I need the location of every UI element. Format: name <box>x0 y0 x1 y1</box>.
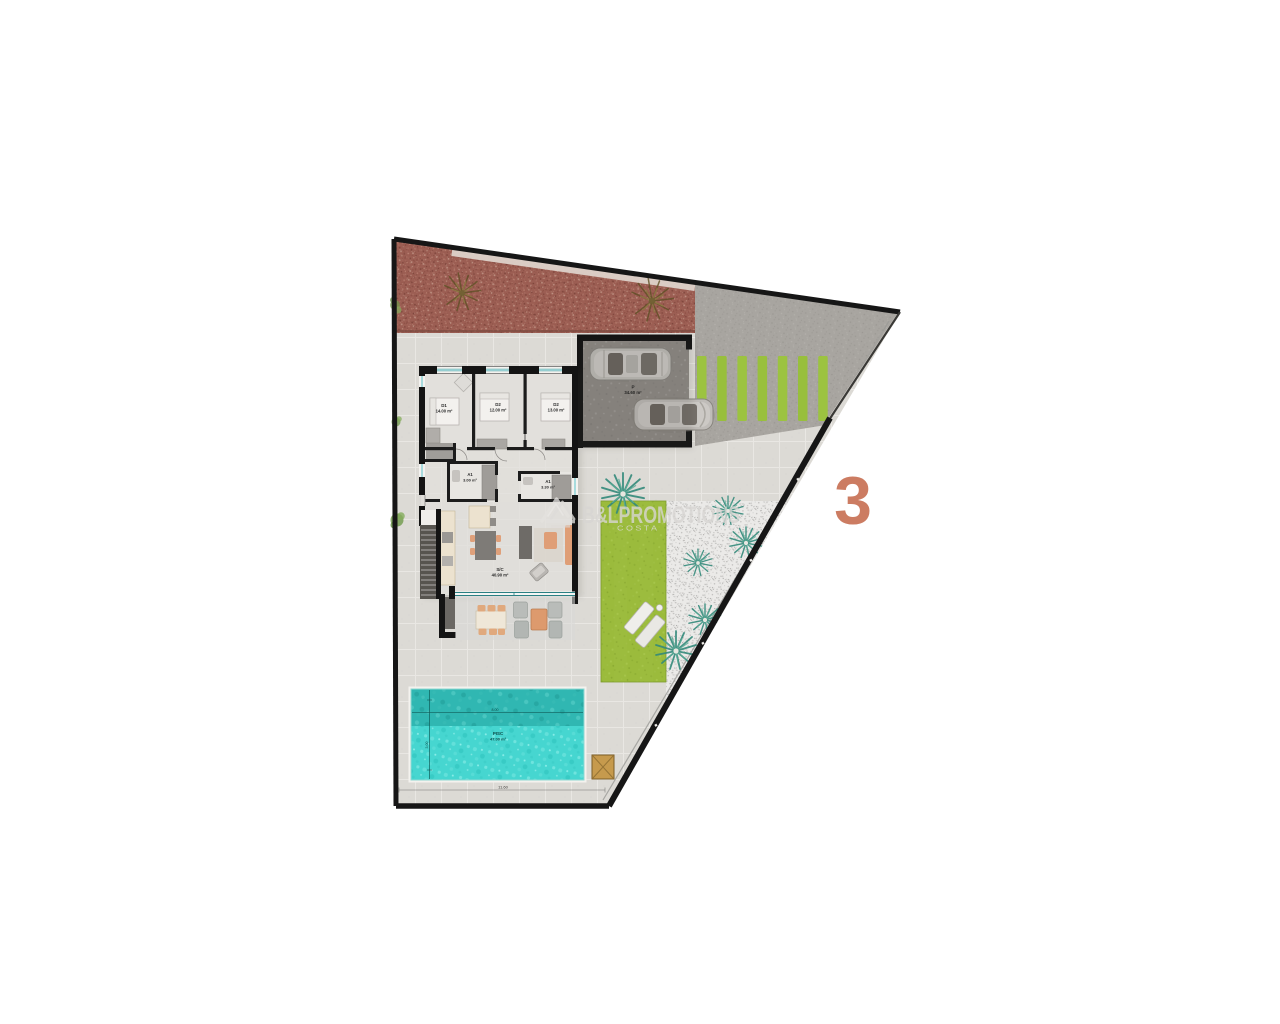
svg-text:47.00 m²: 47.00 m² <box>490 737 507 742</box>
svg-text:12.00 m²: 12.00 m² <box>490 408 507 413</box>
svg-text:A1: A1 <box>467 472 473 477</box>
svg-text:3: 3 <box>834 463 872 539</box>
svg-text:D1: D1 <box>441 403 447 408</box>
svg-text:11.60: 11.60 <box>498 785 508 790</box>
svg-text:C O S T A: C O S T A <box>617 526 657 533</box>
svg-text:40.90 m²: 40.90 m² <box>492 573 509 578</box>
svg-text:3.30 m²: 3.30 m² <box>541 485 555 490</box>
svg-text:S/C: S/C <box>496 567 504 572</box>
svg-text:D2: D2 <box>495 402 501 407</box>
svg-text:3.00 m²: 3.00 m² <box>463 478 477 483</box>
svg-text:PISC: PISC <box>493 731 504 736</box>
svg-text:14.00 m²: 14.00 m² <box>436 409 453 414</box>
svg-text:3.00: 3.00 <box>425 742 429 749</box>
svg-text:8.00: 8.00 <box>492 708 499 712</box>
svg-text:B&LPROMOTIONS: B&LPROMOTIONS <box>582 502 740 529</box>
svg-text:A1: A1 <box>545 479 551 484</box>
svg-text:13.00 m²: 13.00 m² <box>548 408 565 413</box>
svg-text:D2: D2 <box>553 402 559 407</box>
